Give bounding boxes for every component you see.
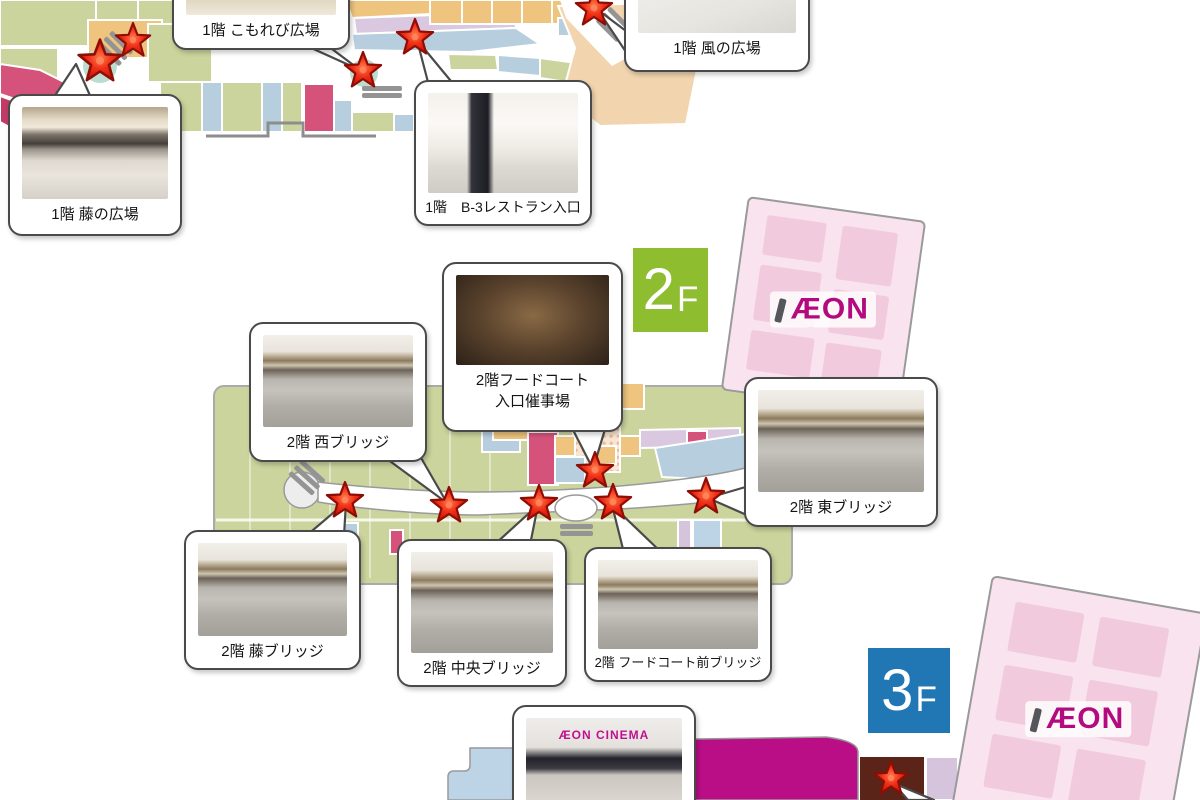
callout-label: 1階 藤の広場 <box>51 204 139 225</box>
photo-b3-restaurant-entrance <box>428 93 578 193</box>
photo-east-bridge <box>758 390 924 492</box>
callout-east-bridge: 2階 東ブリッジ <box>744 377 938 527</box>
callout-label: 2階 フードコート前ブリッジ <box>595 654 762 672</box>
callout-label: 2階 東ブリッジ <box>790 497 893 518</box>
aeon-mark-icon <box>1029 707 1042 732</box>
aeon-logo-text: ÆON <box>791 292 869 325</box>
callout-west-bridge: 2階 西ブリッジ <box>249 322 427 462</box>
callout-label: 2階 中央ブリッジ <box>423 658 541 679</box>
aeon-building-3f: ÆON <box>950 575 1200 800</box>
aeon-logo-text: ÆON <box>1046 702 1124 735</box>
floor-badge-2f: 2 F <box>633 248 708 332</box>
callout-label-line2: 入口催事場 <box>495 393 570 410</box>
photo-central-bridge <box>411 552 553 653</box>
callout-label: 2階フードコート 入口催事場 <box>476 370 589 412</box>
floor-badge-3f: 3 F <box>868 648 950 733</box>
aeon-mark-icon <box>774 298 787 323</box>
floor-badge-3f-suffix: F <box>915 682 936 717</box>
callout-fuji-bridge: 2階 藤ブリッジ <box>184 530 361 670</box>
floor-badge-2f-suffix: F <box>677 282 698 317</box>
photo-foodcourt-front-bridge <box>598 560 758 649</box>
photo-komorebi-plaza <box>186 0 336 15</box>
callout-kaze-plaza: 1階 風の広場 <box>624 0 810 72</box>
callout-label: 2階 西ブリッジ <box>287 432 390 453</box>
aeon-logo: ÆON <box>770 291 876 327</box>
cinema-block <box>695 737 858 800</box>
callout-label: 1階 B-3レストラン入口 <box>425 198 581 218</box>
photo-west-bridge <box>263 335 413 427</box>
callout-komorebi-plaza: 1階 こもれび広場 <box>172 0 350 50</box>
photo-kaze-plaza <box>638 0 796 33</box>
escalator-landing <box>284 472 320 508</box>
callout-aeon-cinema: ÆON CINEMA <box>512 705 696 800</box>
aeon-cinema-sign: ÆON CINEMA <box>526 728 682 742</box>
callout-label: 1階 風の広場 <box>673 38 761 59</box>
aeon-logo: ÆON <box>1025 701 1131 737</box>
callout-central-bridge: 2階 中央ブリッジ <box>397 539 567 687</box>
escalator-icon <box>362 86 402 98</box>
escalator-landing <box>555 495 597 521</box>
photo-foodcourt-entrance <box>456 275 609 365</box>
callout-b3-restaurant-entrance: 1階 B-3レストラン入口 <box>414 80 592 226</box>
callout-foodcourt-entrance: 2階フードコート 入口催事場 <box>442 262 623 432</box>
mall-floor-guide: 2 F 3 F ÆON ÆON 1階 こもれび広場 <box>0 0 1200 800</box>
photo-fuji-plaza <box>22 107 168 199</box>
callout-label: 1階 こもれび広場 <box>202 20 320 41</box>
photo-aeon-cinema: ÆON CINEMA <box>526 718 682 800</box>
callout-foodcourt-front-bridge: 2階 フードコート前ブリッジ <box>584 547 772 682</box>
callout-fuji-plaza: 1階 藤の広場 <box>8 94 182 236</box>
photo-fuji-bridge <box>198 543 347 636</box>
callout-label-line1: 2階フードコート <box>476 372 589 389</box>
callout-label: 2階 藤ブリッジ <box>221 641 324 662</box>
floor-badge-2f-number: 2 <box>643 261 675 319</box>
floor-badge-3f-number: 3 <box>881 662 913 720</box>
